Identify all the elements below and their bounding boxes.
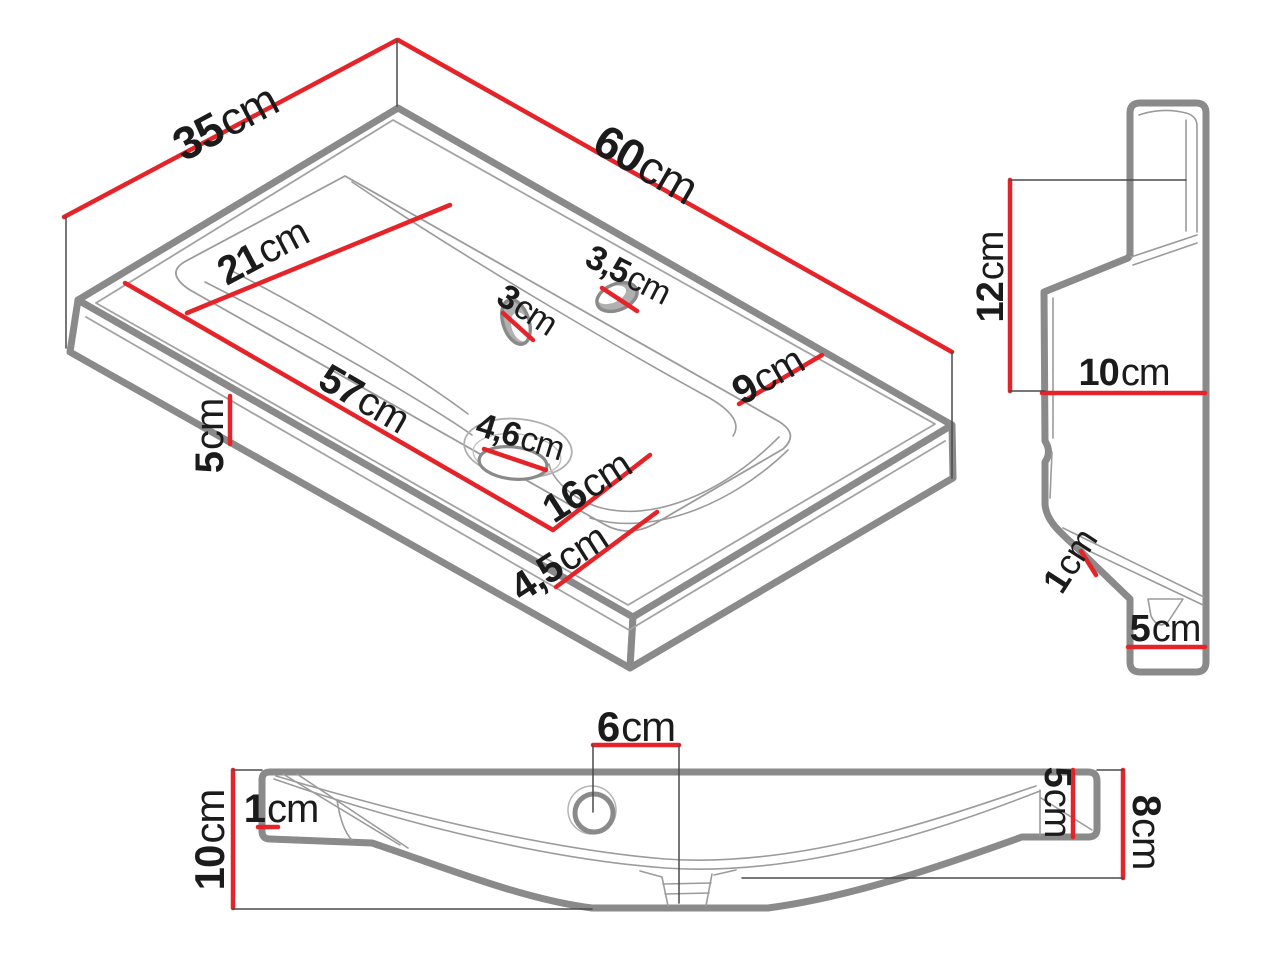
- drawing-canvas: [0, 0, 1280, 960]
- technical-drawing-washbasin: 35cm 60cm 21cm 57cm 16cm 4,5cm 9cm 3cm 3…: [0, 0, 1280, 960]
- isometric-view: [64, 40, 953, 668]
- side-view: [1010, 103, 1206, 672]
- front-faucet-hole: [568, 786, 616, 834]
- front-view: [233, 745, 1123, 909]
